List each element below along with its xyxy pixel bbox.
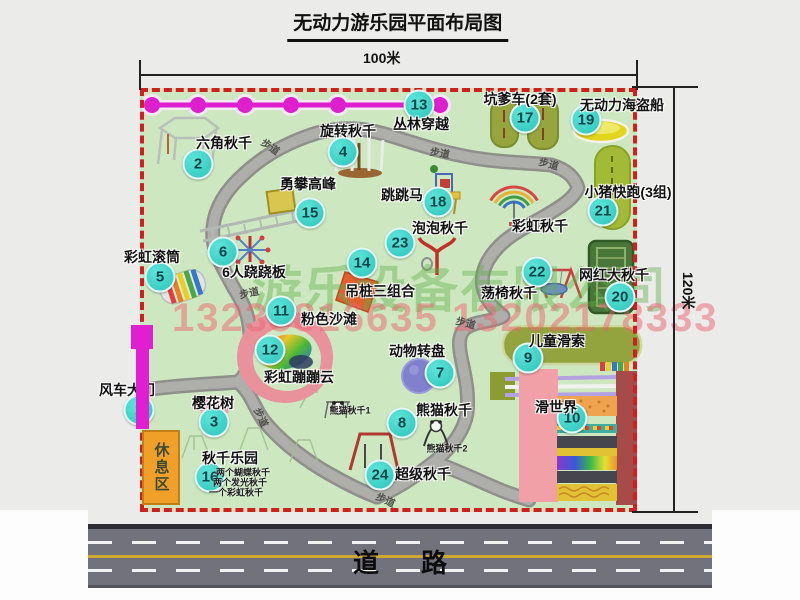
piggy-run-icon [595,146,630,229]
super-swing-icon [350,434,398,470]
slide-world-icons [519,362,637,505]
bubble-swing-icon [419,238,455,275]
windmill-gate-post [136,349,149,429]
right-dimension-tick-bottom [632,511,698,513]
top-dimension-tick-left [139,60,141,90]
pink-beach-icon [237,311,333,403]
jumping-horse-icon [428,165,460,214]
right-dimension-line [673,87,675,512]
pit-car-icons [491,98,558,149]
height-dimension-label: 120米 [678,272,698,309]
rest-area-label: 休息区 [151,442,172,493]
hexagon-swing-icon [158,118,218,164]
right-dimension-tick-top [632,86,698,88]
rest-area: 休息区 [142,430,180,505]
animal-turntable-icon [402,359,436,393]
park-layout-page: { "title": "无动力游乐园平面布局图", "dimensions": … [0,0,800,600]
swing-chair-icon [527,270,581,298]
cherry-tree-icon [200,395,229,425]
jungle-crossing-chain [141,94,451,116]
big-swing-icon [589,241,633,313]
page-title: 无动力游乐园平面布局图 [287,8,508,42]
rotating-swing-icon [336,138,383,178]
top-dimension-line [140,74,637,76]
hanging-pile-icon [336,272,378,312]
six-person-seesaw-icon [230,236,271,265]
pirate-ship-icon [574,120,628,142]
windmill-gate-icon [131,325,153,349]
road-label: 道路 [88,543,712,580]
rainbow-roller-icon [156,266,208,307]
panda-swing-icons [325,401,448,446]
road: 道路 [88,524,712,588]
width-dimension-label: 100米 [363,48,400,68]
